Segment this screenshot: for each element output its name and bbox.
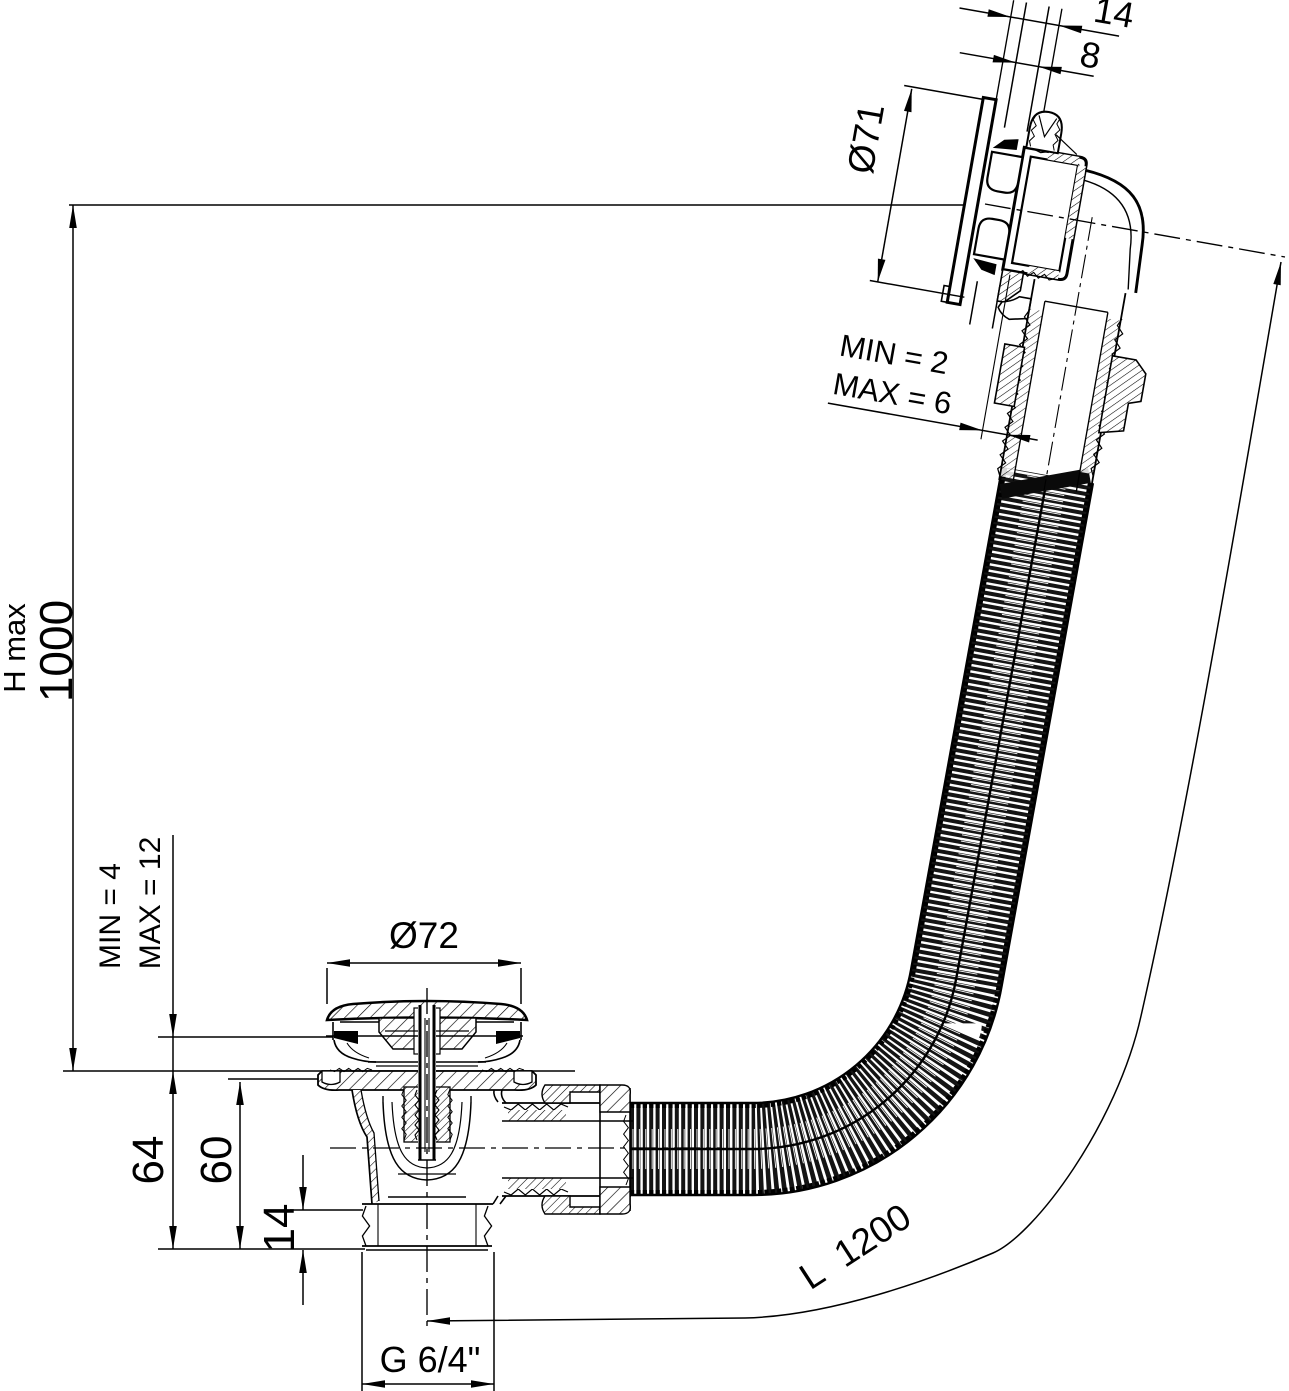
- svg-text:64: 64: [124, 1136, 173, 1185]
- svg-text:MIN = 4: MIN = 4: [94, 863, 127, 969]
- svg-text:1000: 1000: [30, 600, 82, 702]
- svg-text:G 6/4": G 6/4": [380, 1339, 481, 1380]
- svg-text:60: 60: [192, 1136, 241, 1185]
- svg-text:MAX = 12: MAX = 12: [134, 837, 167, 970]
- svg-text:14: 14: [255, 1204, 304, 1253]
- svg-text:Ø72: Ø72: [389, 915, 459, 956]
- svg-text:H max: H max: [0, 603, 32, 693]
